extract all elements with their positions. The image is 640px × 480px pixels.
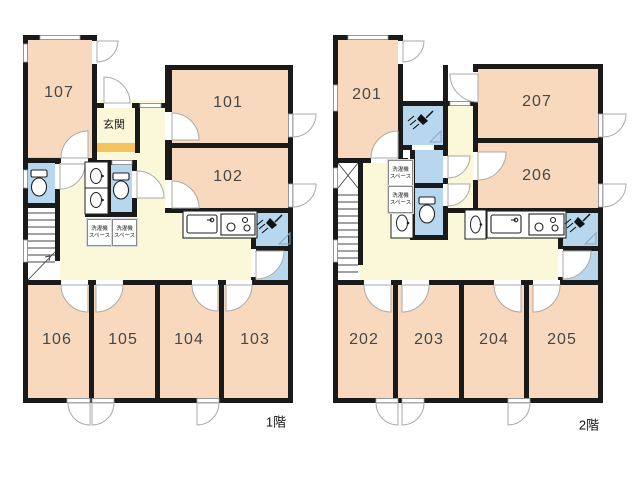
toilet-icon-1f-center (113, 173, 129, 199)
room-102-label: 102 (213, 168, 243, 186)
entrance-label: 玄関 (103, 116, 125, 132)
room-206-label: 206 (522, 167, 552, 185)
laundry-label-line2: スペース (389, 200, 412, 207)
laundry-label-line1: 洗濯機 (88, 226, 111, 233)
laundry-label-line1: 洗濯機 (389, 193, 412, 200)
laundry-label-line2: スペース (389, 174, 412, 181)
room-103-label: 103 (240, 331, 270, 349)
laundry-label-line2: スペース (88, 233, 111, 240)
kitchen-sink-icon-2f (491, 215, 521, 233)
stairs-1f (28, 213, 55, 280)
laundry-space-box-1f-a: 洗濯機 スペース (87, 219, 112, 246)
stove-icon-1f (221, 214, 255, 235)
shower-room-2f-left (403, 106, 443, 145)
stairs-2f (338, 163, 358, 272)
room-201-label: 201 (352, 86, 382, 104)
kitchen-counter-1f (183, 211, 257, 238)
washbasin-kitchen-2f (465, 210, 486, 239)
toilet-icon-2f (419, 197, 435, 223)
stove-icon-2f (529, 214, 564, 235)
laundry-space-box-2f-a: 洗濯機 スペース (388, 160, 413, 187)
room-104-label: 104 (174, 331, 204, 349)
room-107-label: 107 (44, 84, 74, 102)
floor2-label: 2階 (579, 415, 599, 434)
laundry-label-line1: 洗濯機 (389, 167, 412, 174)
kitchen-counter-2f (487, 211, 566, 238)
floorplan-canvas: 107 101 102 106 105 104 103 玄関 洗濯機 スペース … (0, 0, 640, 480)
room-105-label: 105 (108, 331, 138, 349)
shower-room-2f-right (563, 213, 598, 246)
room-106-label: 106 (42, 331, 72, 349)
kitchen-sink-icon-1f (187, 215, 217, 233)
room-207-label: 207 (522, 93, 552, 111)
laundry-space-box-1f-b: 洗濯機 スペース (112, 219, 137, 246)
room-205-label: 205 (547, 331, 577, 349)
room-202-label: 202 (349, 331, 379, 349)
room-204-label: 204 (479, 331, 509, 349)
room-101-label: 101 (213, 94, 243, 112)
floor1-label: 1階 (266, 412, 286, 431)
entrance-step (92, 143, 140, 152)
laundry-space-box-2f-b: 洗濯機 スペース (388, 186, 413, 213)
laundry-label-line2: スペース (113, 233, 136, 240)
toilet-icon-1f-left (31, 170, 47, 196)
room-203-label: 203 (414, 331, 444, 349)
laundry-label-line1: 洗濯機 (113, 226, 136, 233)
washbasin-unit-1f (85, 162, 108, 214)
